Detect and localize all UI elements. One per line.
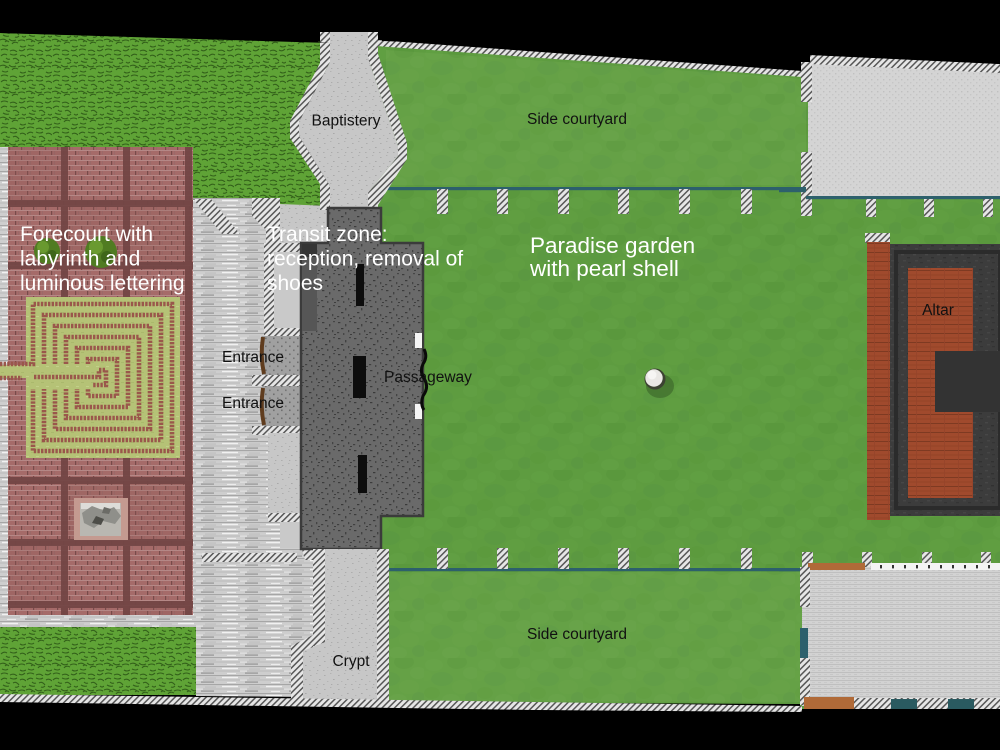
svg-text:Entrance: Entrance [222,349,284,366]
svg-text:Paradise garden: Paradise garden [530,233,695,258]
svg-text:labyrinth and: labyrinth and [20,248,140,271]
svg-text:Transit zone:: Transit zone: [267,223,388,246]
svg-text:Baptistery: Baptistery [312,113,381,130]
svg-text:with pearl shell: with pearl shell [529,256,679,281]
svg-text:Passageway: Passageway [384,369,472,386]
svg-text:Forecourt with: Forecourt with [20,223,153,246]
svg-text:reception, removal of: reception, removal of [267,248,463,271]
svg-text:Crypt: Crypt [332,653,370,670]
svg-text:Altar: Altar [922,302,954,319]
svg-text:Side courtyard: Side courtyard [527,111,627,128]
svg-text:luminous lettering: luminous lettering [20,272,185,295]
svg-text:Side courtyard: Side courtyard [527,626,627,643]
svg-text:shoes: shoes [267,272,323,295]
svg-text:Entrance: Entrance [222,395,284,412]
